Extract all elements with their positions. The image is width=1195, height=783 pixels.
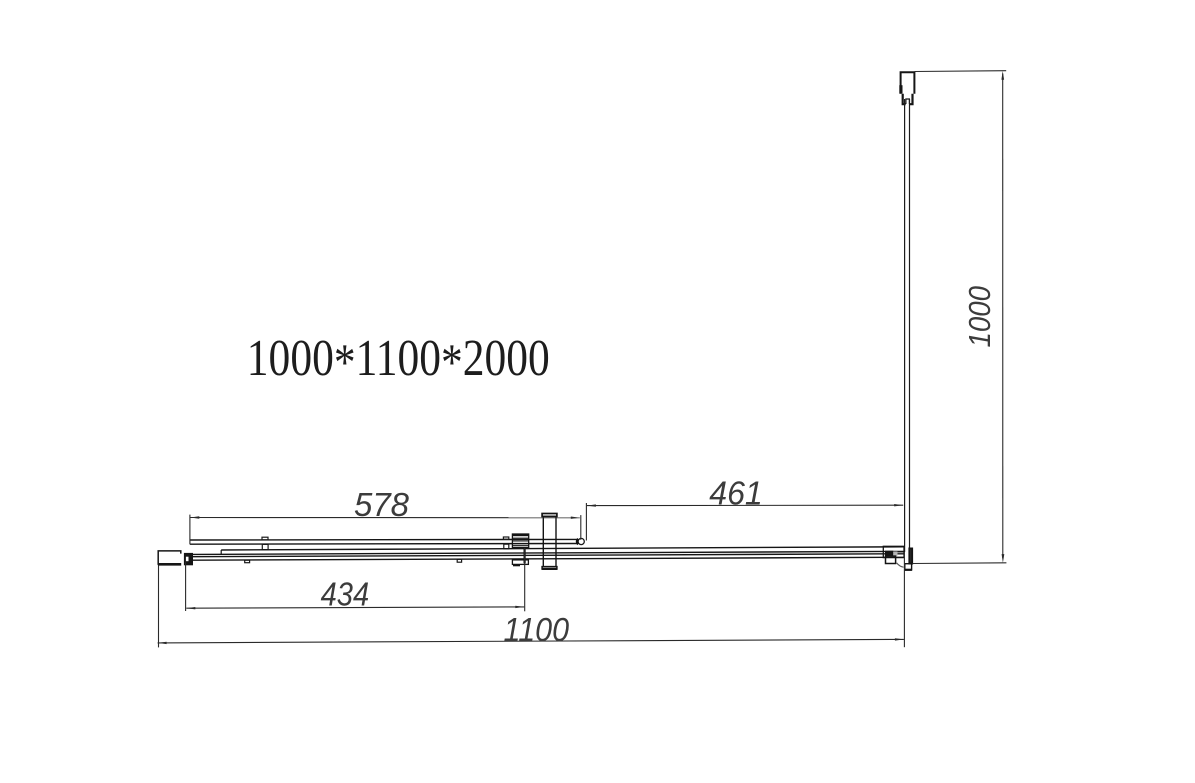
svg-text:434: 434 (321, 575, 370, 612)
svg-text:1100: 1100 (504, 611, 570, 648)
svg-text:578: 578 (354, 486, 410, 523)
svg-text:1000: 1000 (963, 286, 997, 348)
svg-text:461: 461 (709, 475, 763, 512)
svg-text:1000*1100*2000: 1000*1100*2000 (247, 330, 550, 392)
